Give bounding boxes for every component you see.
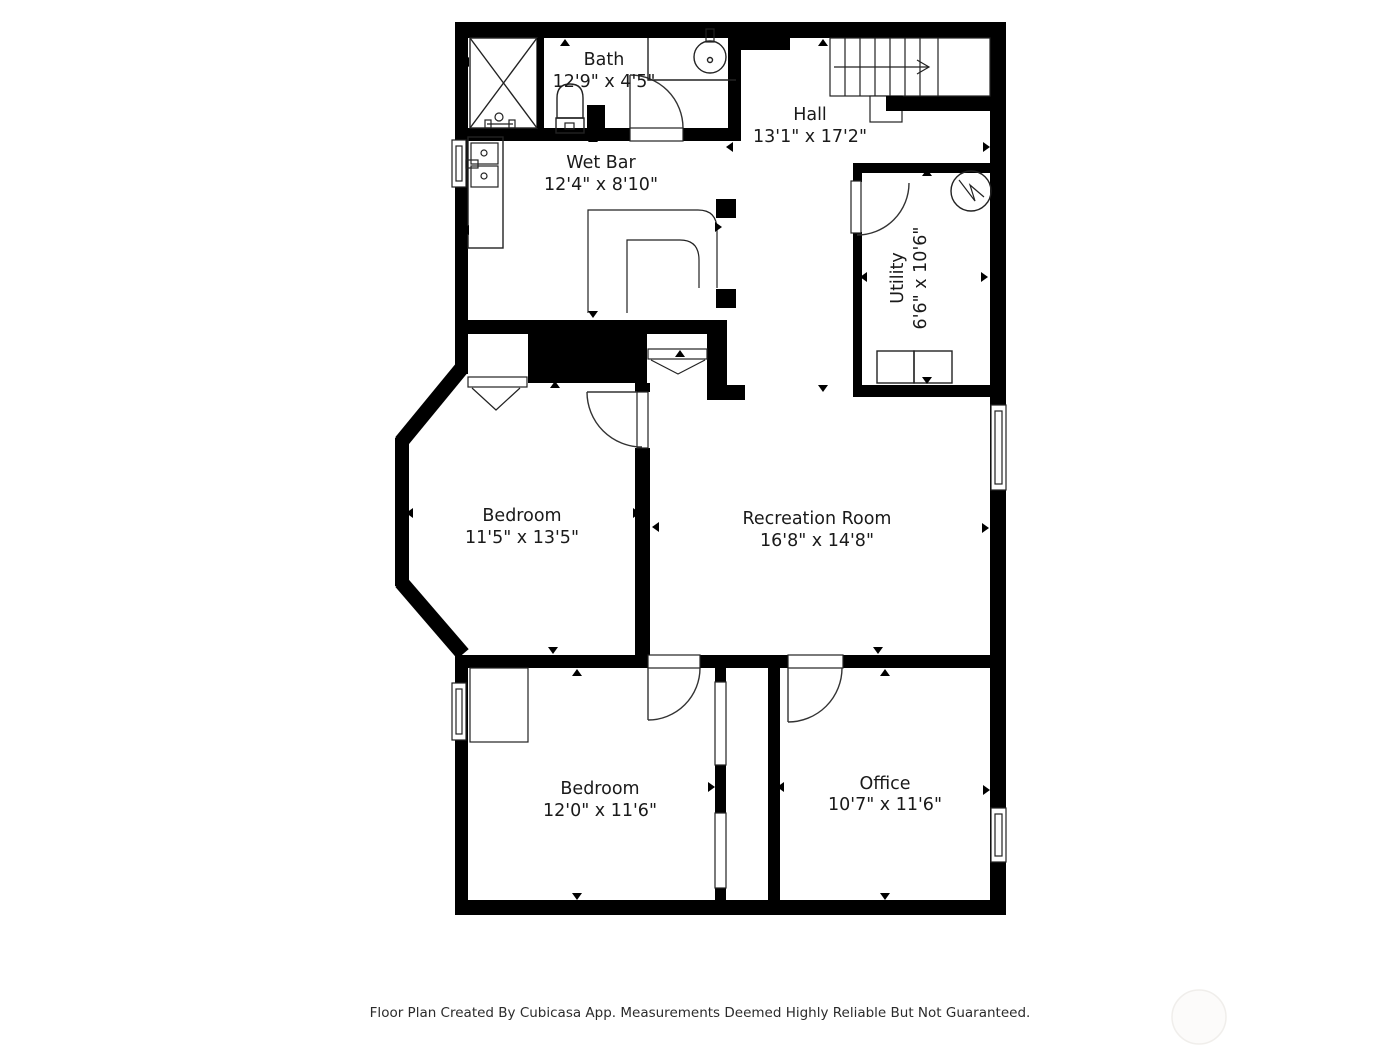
column [716, 289, 736, 308]
room-name: Bedroom [482, 506, 561, 526]
door-swing-icon [587, 392, 648, 448]
room-name: Hall [793, 105, 827, 125]
shower-faucet-icon [485, 113, 515, 128]
room-label-office: Office 10'7" x 11'6" [828, 774, 942, 815]
window-icon [991, 405, 1006, 490]
floor-plan-page: Bath 12'9" x 4'5" Hall 13'1" x 17'2" Wet… [0, 0, 1400, 1050]
wet-bar-sink-icon [466, 137, 503, 248]
shower-icon [470, 38, 544, 128]
room-label-bedroom-2: Bedroom 12'0" x 11'6" [543, 779, 657, 821]
bar-counter [588, 210, 717, 313]
window-icon [452, 140, 466, 187]
water-heater-icon [951, 171, 991, 211]
door-swing-icon [648, 655, 700, 720]
wall-stub [587, 105, 605, 130]
stairs-direction-arrow [834, 60, 929, 74]
room-label-recreation-room: Recreation Room 16'8" x 14'8" [743, 509, 892, 551]
floor-plan-svg: Bath 12'9" x 4'5" Hall 13'1" x 17'2" Wet… [0, 0, 1400, 1050]
room-dims: 16'8" x 14'8" [760, 531, 874, 551]
room-dims: 13'1" x 17'2" [753, 127, 867, 147]
room-dims: 12'4" x 8'10" [544, 175, 658, 195]
room-name: Bath [584, 50, 625, 70]
room-name: Bedroom [560, 779, 639, 799]
column [716, 199, 736, 218]
room-label-wet-bar: Wet Bar 12'4" x 8'10" [544, 153, 658, 195]
footer-disclaimer: Floor Plan Created By Cubicasa App. Meas… [370, 1005, 1031, 1021]
window-icon [452, 683, 466, 740]
room-label-hall: Hall 13'1" x 17'2" [753, 105, 867, 147]
walls [395, 22, 1006, 915]
bifold-closet-icon [648, 349, 707, 374]
room-dims: 11'5" x 13'5" [465, 528, 579, 548]
washer-dryer-icon [877, 351, 952, 383]
door-swing-icon [788, 655, 843, 722]
room-name: Office [859, 774, 910, 794]
room-dims: 6'6" x 10'6" [911, 227, 931, 330]
bifold-closet-icon [468, 377, 527, 410]
room-label-utility: Utility 6'6" x 10'6" [888, 227, 931, 330]
window-icon [991, 808, 1006, 862]
room-name: Wet Bar [566, 153, 636, 173]
room-name: Recreation Room [743, 509, 892, 529]
room-dims: 12'0" x 11'6" [543, 801, 657, 821]
room-dims: 10'7" x 11'6" [828, 795, 942, 815]
room-name: Utility [888, 252, 908, 303]
watermark-circle [1172, 990, 1226, 1044]
room-label-bath: Bath 12'9" x 4'5" [553, 50, 656, 92]
room-dims: 12'9" x 4'5" [553, 72, 656, 92]
furniture-outline [470, 668, 528, 742]
room-label-bedroom-1: Bedroom 11'5" x 13'5" [465, 506, 579, 548]
door-swing-icon [851, 181, 909, 235]
